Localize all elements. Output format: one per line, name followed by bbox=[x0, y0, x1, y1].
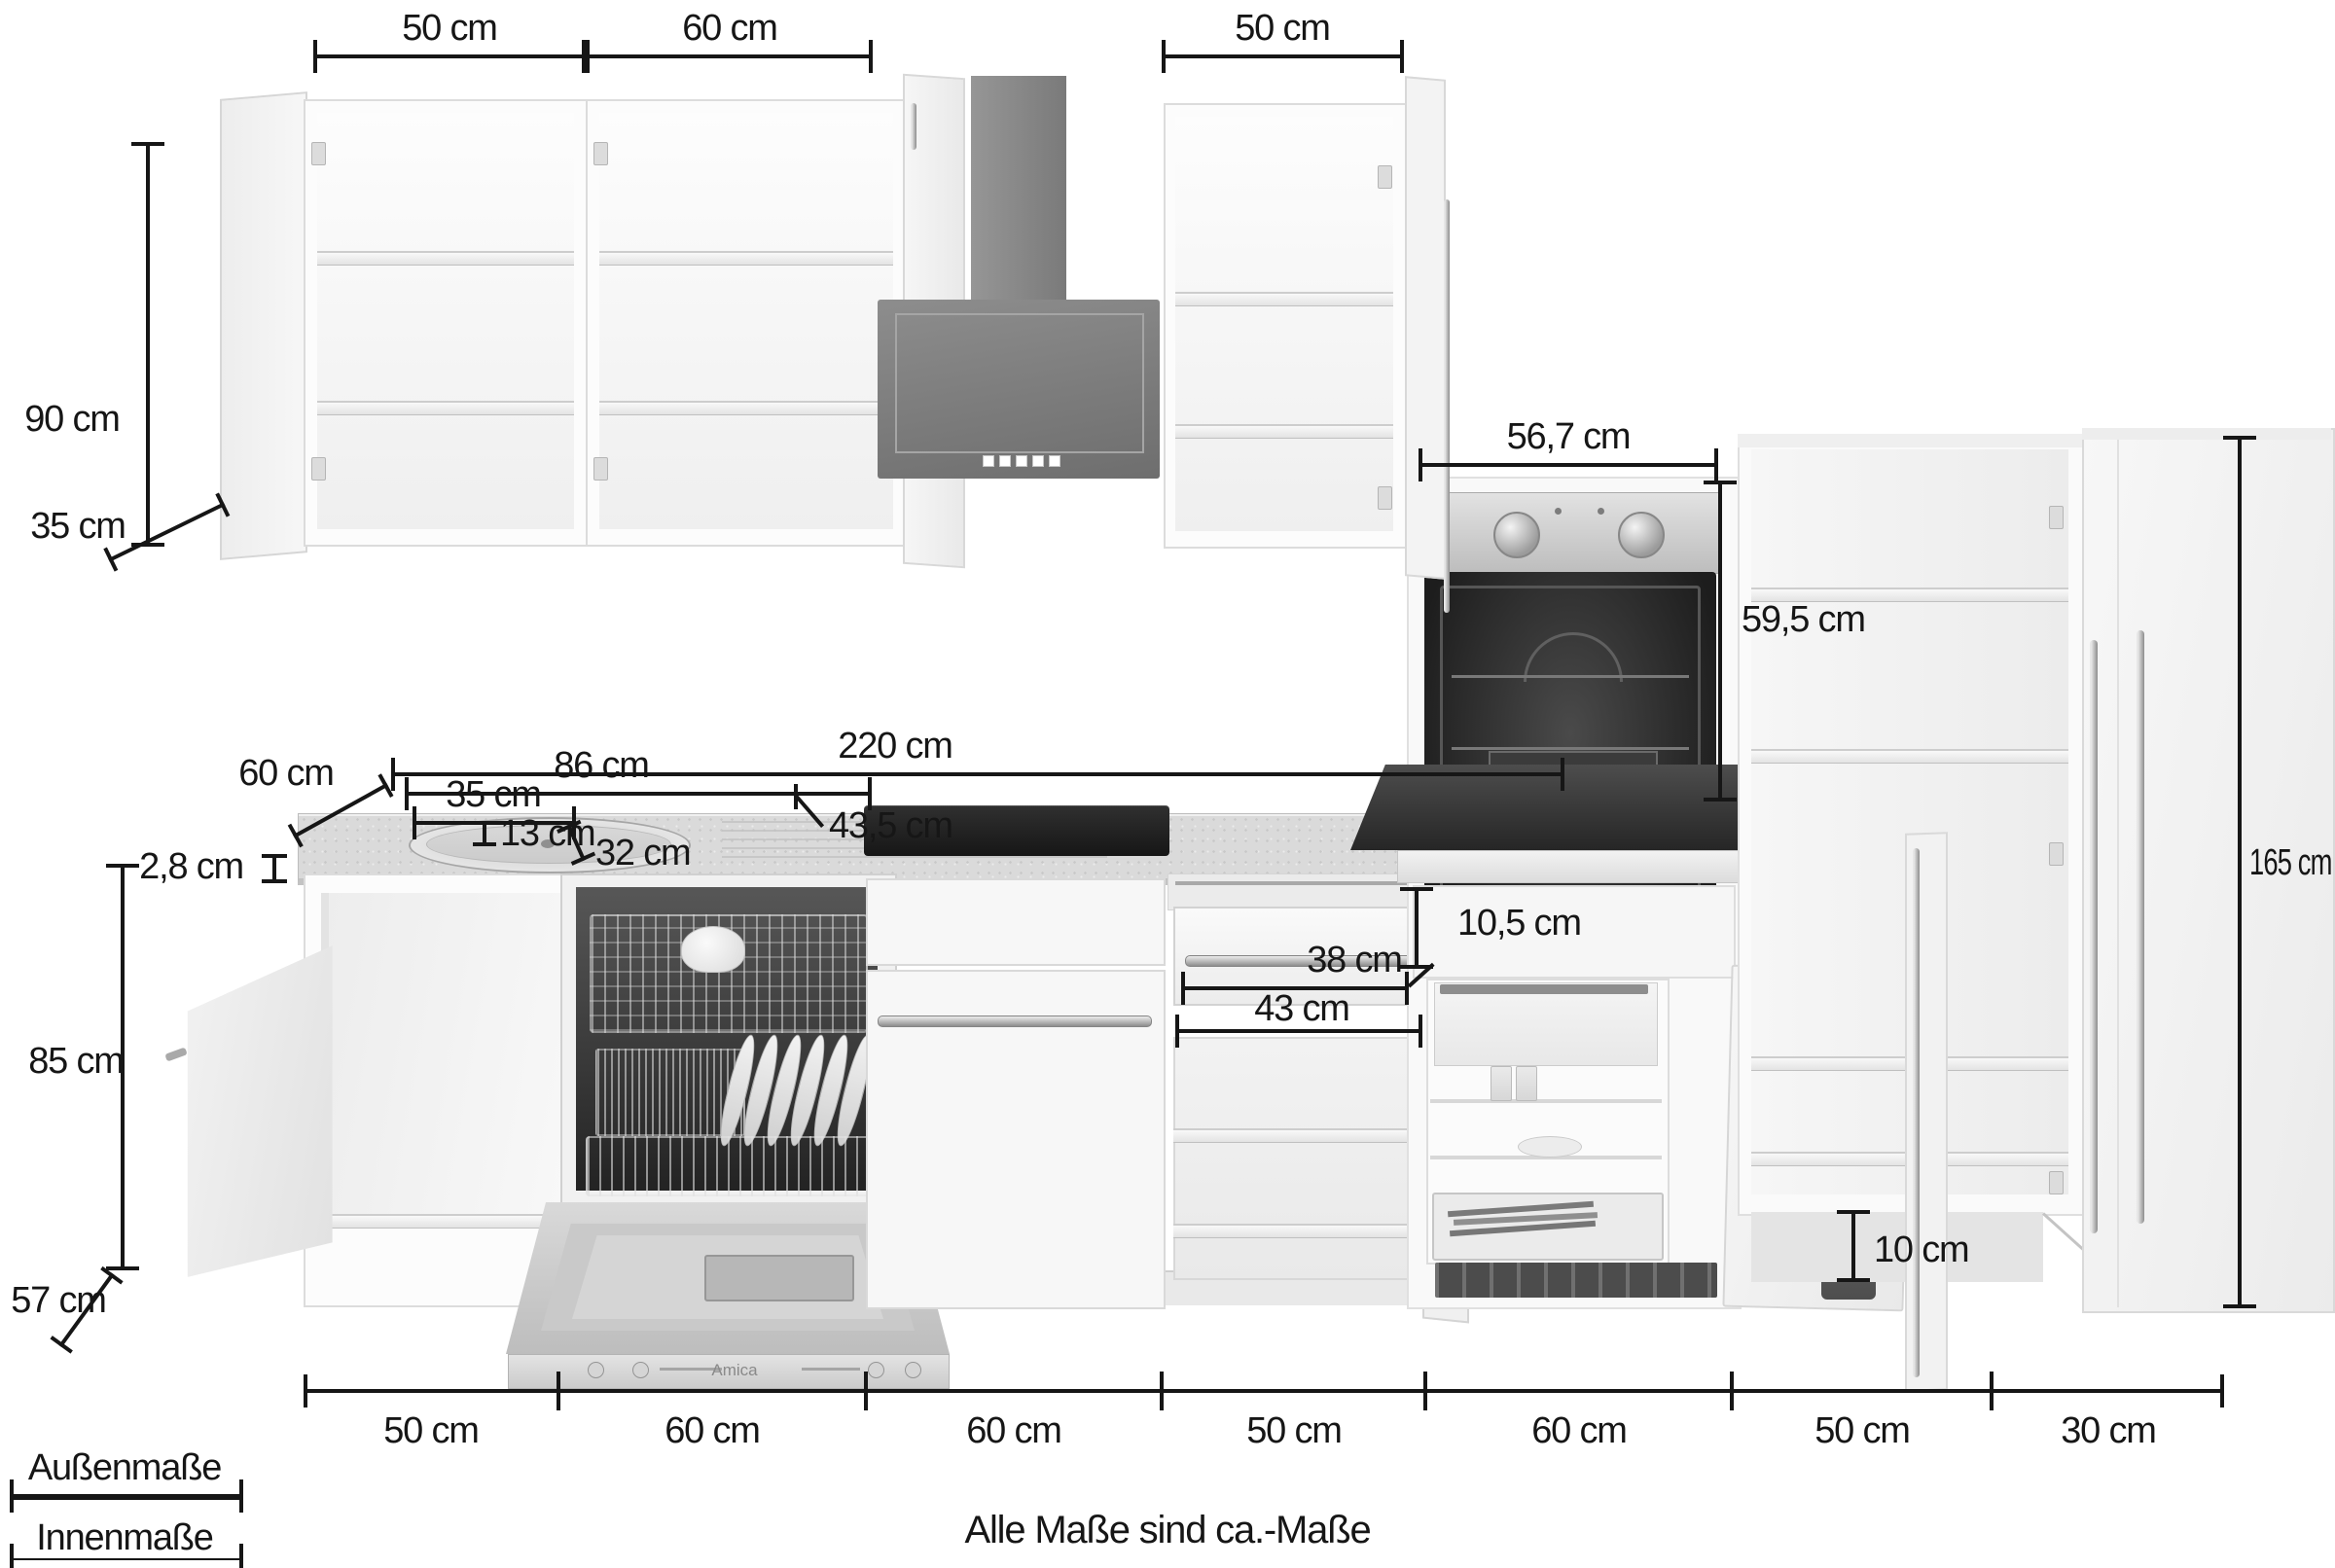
tall-cabinet-top-band bbox=[1738, 434, 2082, 447]
wall-cabinet-2-interior bbox=[599, 113, 893, 529]
dim-label-bottom-seg: 50 cm bbox=[1784, 1412, 1940, 1451]
dim-label-plinth: 10 cm bbox=[1874, 1231, 2020, 1270]
oven-control-panel bbox=[1420, 492, 1722, 574]
open-cabinet-interior bbox=[1173, 1037, 1422, 1280]
dim-line-wall-height bbox=[146, 142, 150, 547]
dishwasher-indicator-bar bbox=[802, 1368, 860, 1371]
wall-hinge bbox=[1378, 165, 1392, 189]
tall-cabinet-hinge bbox=[2049, 842, 2064, 866]
dim-label-top-60: 60 cm bbox=[623, 10, 837, 49]
dim-label-base-depth: 57 cm bbox=[0, 1282, 117, 1321]
fridge-vent-grille bbox=[1435, 1263, 1717, 1298]
tall-cabinet-door-handle bbox=[1913, 848, 1920, 1377]
dim-symbol-thickness-bottom bbox=[262, 879, 287, 883]
dim-label-drawer-38: 38 cm bbox=[1276, 942, 1432, 980]
dim-line-drawer-43 bbox=[1175, 1029, 1422, 1033]
open-cabinet-shelf bbox=[1173, 1128, 1419, 1143]
wall-shelf bbox=[317, 401, 574, 415]
wall-shelf bbox=[1175, 424, 1393, 439]
dishwasher-dial bbox=[868, 1362, 884, 1378]
dim-line-top-50-left bbox=[313, 54, 586, 58]
fridge-glass bbox=[1491, 1066, 1512, 1101]
dim-symbol-depth-13-base bbox=[473, 842, 496, 846]
hood-button bbox=[1032, 455, 1044, 467]
wall-cabinet-3-door-handle bbox=[1444, 199, 1450, 613]
dim-line-plinth bbox=[1851, 1210, 1855, 1282]
fridge-shelf bbox=[1430, 1099, 1662, 1103]
dim-symbol-depth-13 bbox=[483, 821, 486, 844]
dim-label-bottom-seg: 60 cm bbox=[936, 1412, 1092, 1451]
footnote: Alle Maße sind ca.-Maße bbox=[876, 1510, 1459, 1550]
dim-label-top-50-right: 50 cm bbox=[1175, 10, 1389, 49]
legend-inner-label: Innenmaße bbox=[27, 1519, 222, 1558]
hood-button bbox=[999, 455, 1011, 467]
dim-tick-43-5 bbox=[794, 784, 798, 809]
hood-chimney bbox=[971, 76, 1066, 302]
dim-line-tall-height bbox=[2238, 436, 2242, 1308]
drawer-opening bbox=[1167, 873, 1417, 910]
dim-label-run-220: 220 cm bbox=[817, 728, 973, 766]
cooktop-cabinet-drawer-front bbox=[866, 878, 1166, 966]
dim-label-bottom-seg: 50 cm bbox=[353, 1412, 509, 1451]
oven-knob bbox=[1493, 512, 1540, 558]
wall-hinge bbox=[311, 142, 326, 165]
dishwasher-cup bbox=[681, 926, 745, 973]
dim-line-top-50-right bbox=[1162, 54, 1404, 58]
wall-shelf bbox=[317, 251, 574, 266]
wall-hinge bbox=[311, 457, 326, 481]
dim-line-drawer-front bbox=[1415, 887, 1419, 969]
sink-cabinet-interior bbox=[321, 893, 566, 1214]
dim-tick-bottom bbox=[1160, 1372, 1164, 1410]
wall-hinge bbox=[593, 457, 608, 481]
sink-cabinet-door-handle bbox=[164, 1047, 187, 1061]
dim-label-oven-height: 59,5 cm bbox=[1742, 601, 1917, 640]
hood-glass-frame bbox=[895, 313, 1144, 453]
dim-label-drawer-front: 10,5 cm bbox=[1457, 905, 1642, 944]
tall-cabinet-shelf bbox=[1751, 749, 2068, 764]
dishwasher-brand: Amica bbox=[681, 1362, 788, 1379]
dim-label-oven-width: 56,7 cm bbox=[1461, 418, 1675, 457]
tall-cabinet-door-open bbox=[1905, 832, 1948, 1392]
dim-label-bowl-32: 32 cm bbox=[595, 835, 741, 873]
wall-cabinet-1-interior bbox=[317, 113, 574, 529]
tall-cabinet-hinge bbox=[2049, 506, 2064, 529]
fridge-glass bbox=[1516, 1066, 1537, 1101]
dim-tick-bottom bbox=[1990, 1372, 1994, 1410]
hood-button bbox=[1049, 455, 1060, 467]
dim-tick-bottom bbox=[1730, 1372, 1734, 1410]
dim-tick-bottom bbox=[864, 1372, 868, 1410]
drawer-opening-slot bbox=[1175, 881, 1409, 885]
hood-button bbox=[983, 455, 994, 467]
dim-line-oven-width bbox=[1419, 463, 1718, 467]
cooktop-cabinet-handle bbox=[878, 1016, 1152, 1027]
fridge-freezer-box bbox=[1434, 982, 1658, 1066]
open-cabinet-shelf bbox=[1173, 1224, 1419, 1238]
dim-label-sink-depth: 43,5 cm bbox=[829, 807, 1014, 846]
wall-cabinet-3-door-open bbox=[1405, 76, 1446, 580]
dim-line-oven-height bbox=[1718, 481, 1722, 802]
dim-line-top-60 bbox=[586, 54, 873, 58]
dim-label-worktop-depth: 60 cm bbox=[208, 755, 364, 794]
wall-cabinet-3-interior bbox=[1175, 117, 1393, 531]
kitchen-dimension-diagram: Amica bbox=[0, 0, 2335, 1568]
dim-line-bottom-run bbox=[304, 1389, 2224, 1393]
wall-shelf bbox=[599, 401, 893, 415]
dim-label-base-height: 85 cm bbox=[8, 1043, 144, 1082]
dim-label-bowl-35: 35 cm bbox=[415, 776, 571, 815]
oven-indicator-dot bbox=[1598, 508, 1604, 515]
dim-label-bottom-seg: 60 cm bbox=[1501, 1412, 1657, 1451]
wall-hinge bbox=[593, 142, 608, 165]
dishwasher-dial bbox=[632, 1362, 649, 1378]
dim-label-bottom-seg: 50 cm bbox=[1216, 1412, 1372, 1451]
oven-knob bbox=[1618, 512, 1665, 558]
oven-door-rim bbox=[1397, 850, 1745, 883]
dim-label-top-50-left: 50 cm bbox=[342, 10, 557, 49]
dim-label-tall-height: 165 cm bbox=[2249, 844, 2335, 883]
legend-outer-line bbox=[10, 1494, 243, 1500]
dim-tick-bottom bbox=[557, 1372, 560, 1410]
fridge-freezer-slot bbox=[1440, 984, 1648, 994]
dishwasher-dial bbox=[588, 1362, 604, 1378]
wall-hinge bbox=[1378, 486, 1392, 510]
wall-cabinet-2-door-handle bbox=[911, 103, 916, 150]
dim-label-bottom-seg: 30 cm bbox=[2030, 1412, 2186, 1451]
sink-cabinet-bottom-board bbox=[321, 1214, 558, 1229]
fridge-cheese bbox=[1518, 1136, 1582, 1158]
dim-symbol-thickness-top bbox=[262, 854, 287, 858]
wall-shelf bbox=[1175, 292, 1393, 306]
legend-inner-line bbox=[10, 1558, 243, 1560]
dim-label-wall-height: 90 cm bbox=[14, 401, 130, 440]
oven-indicator-dot bbox=[1555, 508, 1562, 515]
tall-cabinet-hinge bbox=[2049, 1171, 2064, 1194]
tall-cabinet-panel-line bbox=[2117, 440, 2119, 1307]
dim-label-drawer-43: 43 cm bbox=[1224, 990, 1380, 1029]
tall-cabinet-closed-top bbox=[2082, 428, 2331, 440]
legend-outer-label: Außenmaße bbox=[27, 1449, 222, 1488]
dishwasher-dispenser bbox=[704, 1255, 854, 1301]
oven-rack bbox=[1452, 675, 1689, 678]
oven-rack bbox=[1452, 747, 1689, 750]
wall-cabinet-1-door-open bbox=[220, 91, 307, 560]
tall-cabinet-handle bbox=[2137, 630, 2144, 1224]
wall-shelf bbox=[599, 251, 893, 266]
dim-label-wall-depth: 35 cm bbox=[10, 508, 146, 547]
tall-cabinet-handle bbox=[2090, 640, 2098, 1233]
dishwasher-lower-basket bbox=[586, 1136, 872, 1196]
hood-button bbox=[1016, 455, 1027, 467]
dishwasher-dial bbox=[905, 1362, 921, 1378]
dim-label-bottom-seg: 60 cm bbox=[634, 1412, 790, 1451]
dim-tick-bottom bbox=[1423, 1372, 1427, 1410]
sink-cabinet-door-open bbox=[183, 939, 339, 1284]
